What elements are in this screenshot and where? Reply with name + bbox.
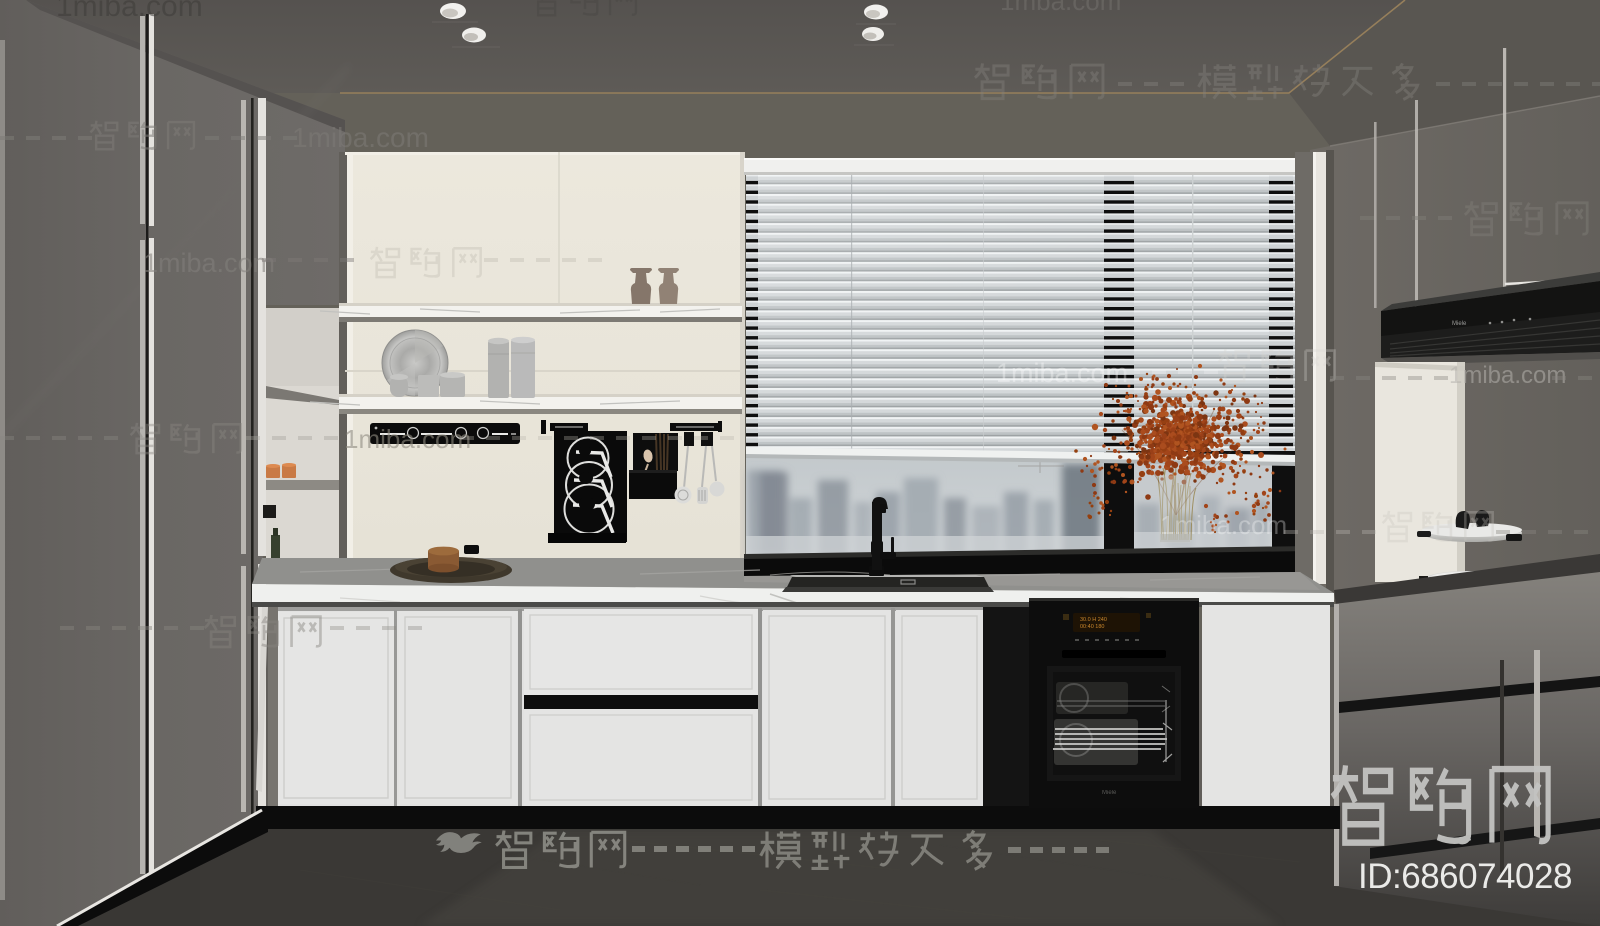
svg-text:1miba.com: 1miba.com — [56, 0, 203, 23]
svg-text:1miba.com: 1miba.com — [143, 248, 275, 278]
svg-text:1miba.com: 1miba.com — [1449, 362, 1566, 389]
svg-text:1miba.com: 1miba.com — [1160, 510, 1287, 540]
svg-text:1miba.com: 1miba.com — [344, 424, 471, 454]
svg-text:00:40 180: 00:40 180 — [1080, 624, 1104, 630]
svg-text:1miba.com: 1miba.com — [292, 122, 429, 153]
svg-text:Miele: Miele — [1102, 790, 1117, 796]
svg-text:Miele: Miele — [1452, 321, 1467, 327]
svg-text:ID:686074028: ID:686074028 — [1358, 857, 1572, 896]
svg-text:1mba.com: 1mba.com — [1000, 0, 1121, 16]
svg-text:30.0 H 240: 30.0 H 240 — [1080, 617, 1107, 623]
